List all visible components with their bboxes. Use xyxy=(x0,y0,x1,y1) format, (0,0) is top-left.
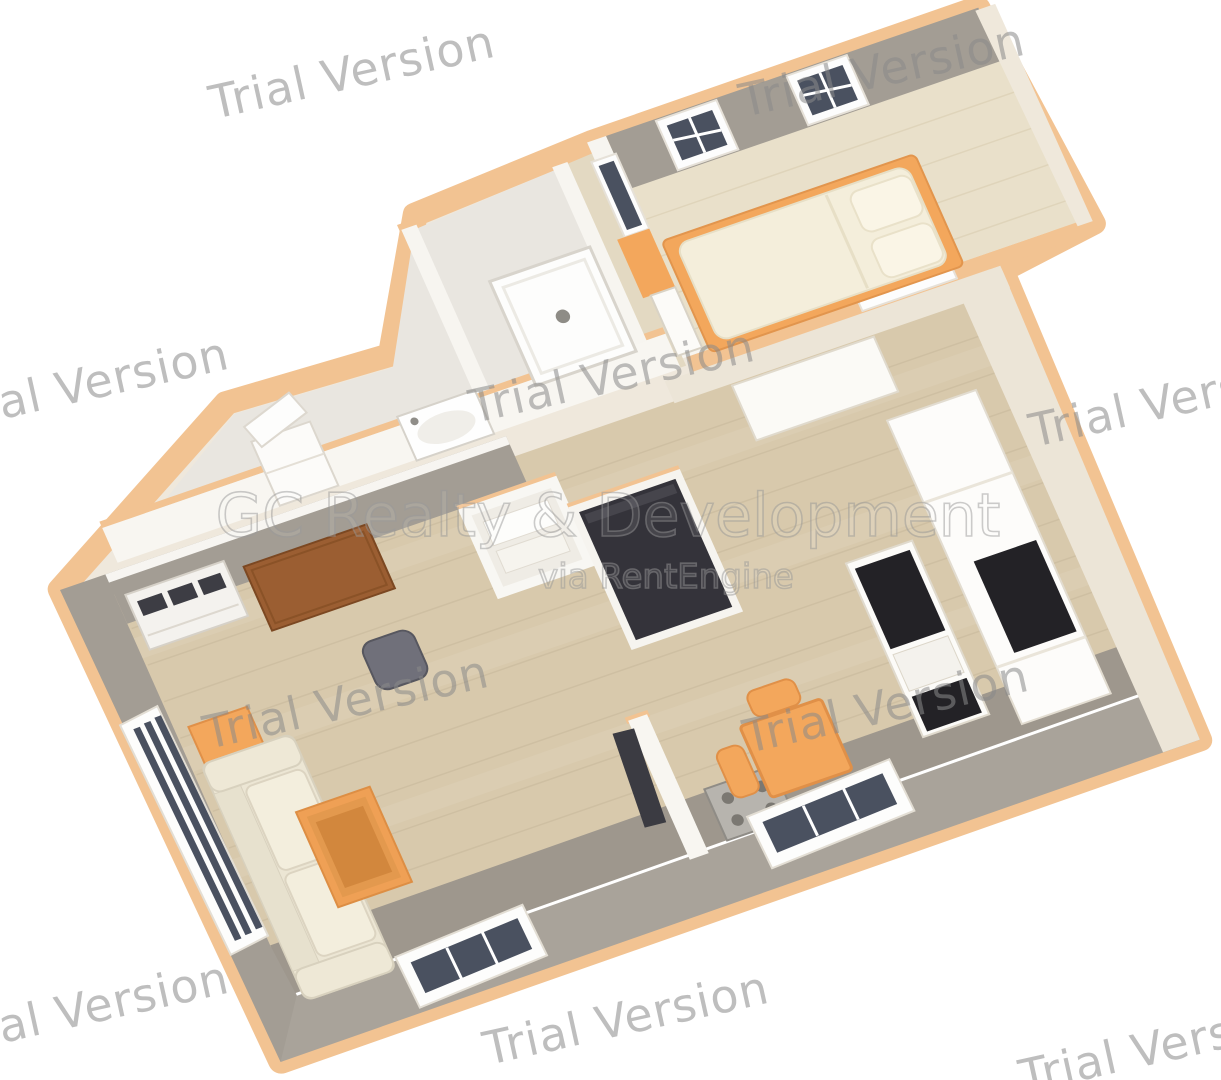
apartment-unit xyxy=(0,2,1221,1066)
floorplan-screenshot: Trial Version Trial Version Trial Versio… xyxy=(0,0,1221,1080)
floorplan-3d-render xyxy=(0,0,1221,1080)
